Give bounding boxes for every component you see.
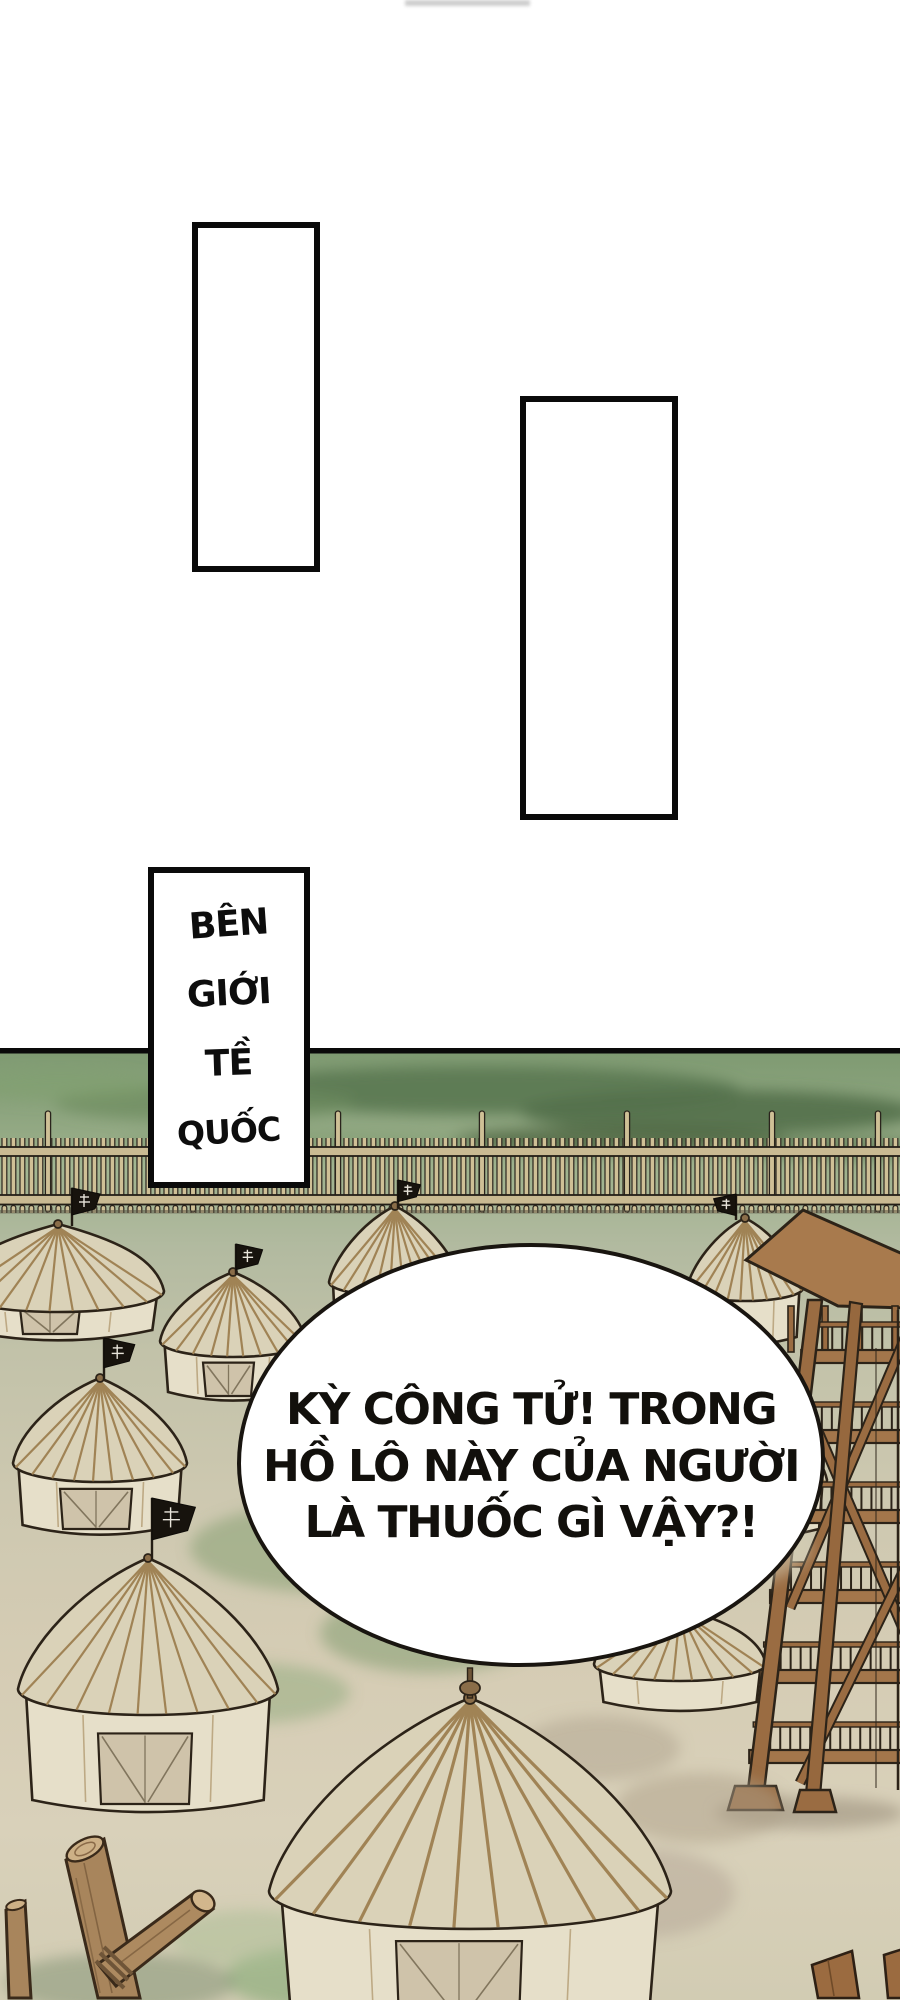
panel-top-border: [0, 1048, 900, 1054]
empty-vertical-panel-2: [520, 396, 678, 820]
speech-bubble: KỲ CÔNG TỬ! TRONG HỒ LÔ NÀY CỦA NGƯỜI LÀ…: [237, 1243, 825, 1667]
caption-word: TỀ: [205, 1045, 253, 1083]
empty-vertical-panel-1: [192, 222, 320, 572]
speech-bubble-line: HỒ LÔ NÀY CỦA NGƯỜI: [263, 1439, 799, 1496]
caption-word: BÊN: [188, 904, 269, 945]
page-top-torn-edge: [405, 0, 530, 6]
comic-page: KỲ CÔNG TỬ! TRONG HỒ LÔ NÀY CỦA NGƯỜI LÀ…: [0, 0, 900, 2000]
speech-bubble-line: LÀ THUỐC GÌ VẬY?!: [305, 1495, 758, 1552]
caption-word: GIỚI: [186, 974, 272, 1014]
caption-word: QUỐC: [177, 1113, 282, 1151]
speech-bubble-line: KỲ CÔNG TỬ! TRONG: [286, 1382, 776, 1439]
location-caption-box: BÊN GIỚI TỀ QUỐC: [148, 867, 310, 1188]
